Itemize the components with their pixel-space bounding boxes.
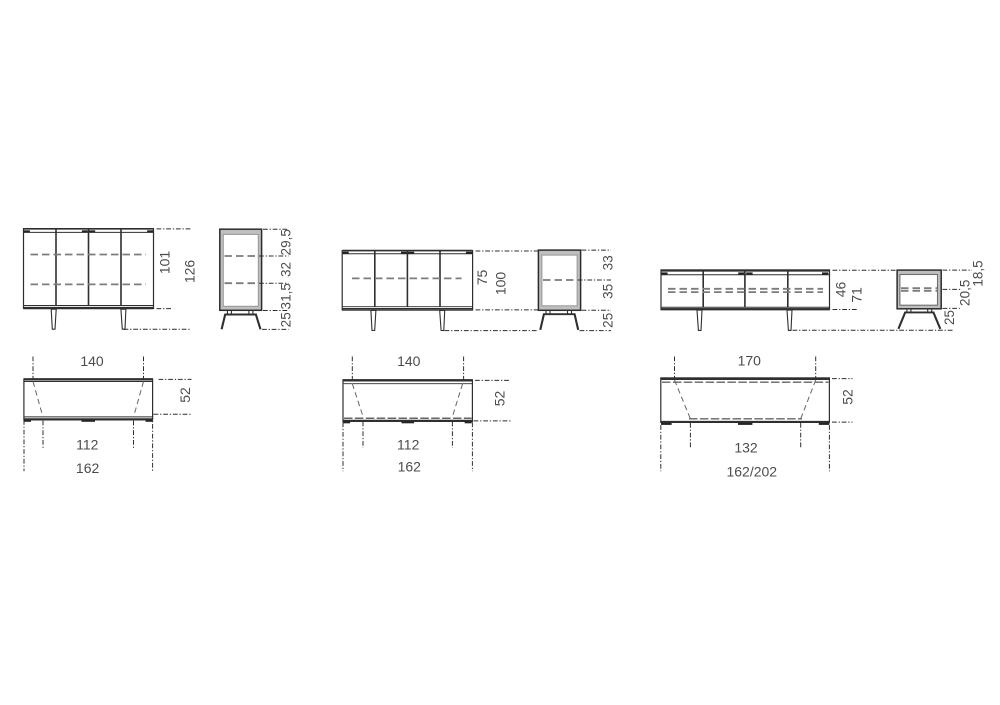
svg-text:18,5: 18,5 [971, 260, 986, 286]
svg-text:25: 25 [601, 313, 616, 328]
svg-text:31,5: 31,5 [279, 283, 294, 309]
svg-text:25: 25 [279, 312, 294, 327]
svg-text:33: 33 [601, 255, 616, 270]
svg-text:20,5: 20,5 [958, 280, 973, 306]
svg-text:32: 32 [279, 262, 294, 277]
svg-text:112: 112 [76, 437, 99, 453]
svg-text:162: 162 [398, 459, 422, 475]
svg-text:140: 140 [397, 353, 421, 369]
svg-text:101: 101 [157, 251, 173, 275]
svg-text:162/202: 162/202 [726, 463, 777, 479]
svg-text:112: 112 [397, 437, 420, 453]
svg-text:100: 100 [493, 272, 509, 296]
svg-text:75: 75 [474, 270, 490, 286]
svg-text:162: 162 [76, 460, 100, 476]
svg-text:71: 71 [849, 287, 865, 303]
svg-text:140: 140 [80, 353, 104, 369]
svg-text:29,5: 29,5 [279, 229, 294, 255]
svg-text:170: 170 [738, 353, 762, 369]
svg-text:132: 132 [734, 439, 758, 455]
svg-text:46: 46 [833, 282, 849, 298]
svg-text:52: 52 [839, 389, 855, 405]
svg-text:52: 52 [492, 391, 508, 407]
svg-text:35: 35 [601, 284, 616, 299]
svg-text:126: 126 [182, 260, 198, 284]
svg-text:25: 25 [942, 310, 957, 325]
svg-text:52: 52 [177, 387, 193, 403]
